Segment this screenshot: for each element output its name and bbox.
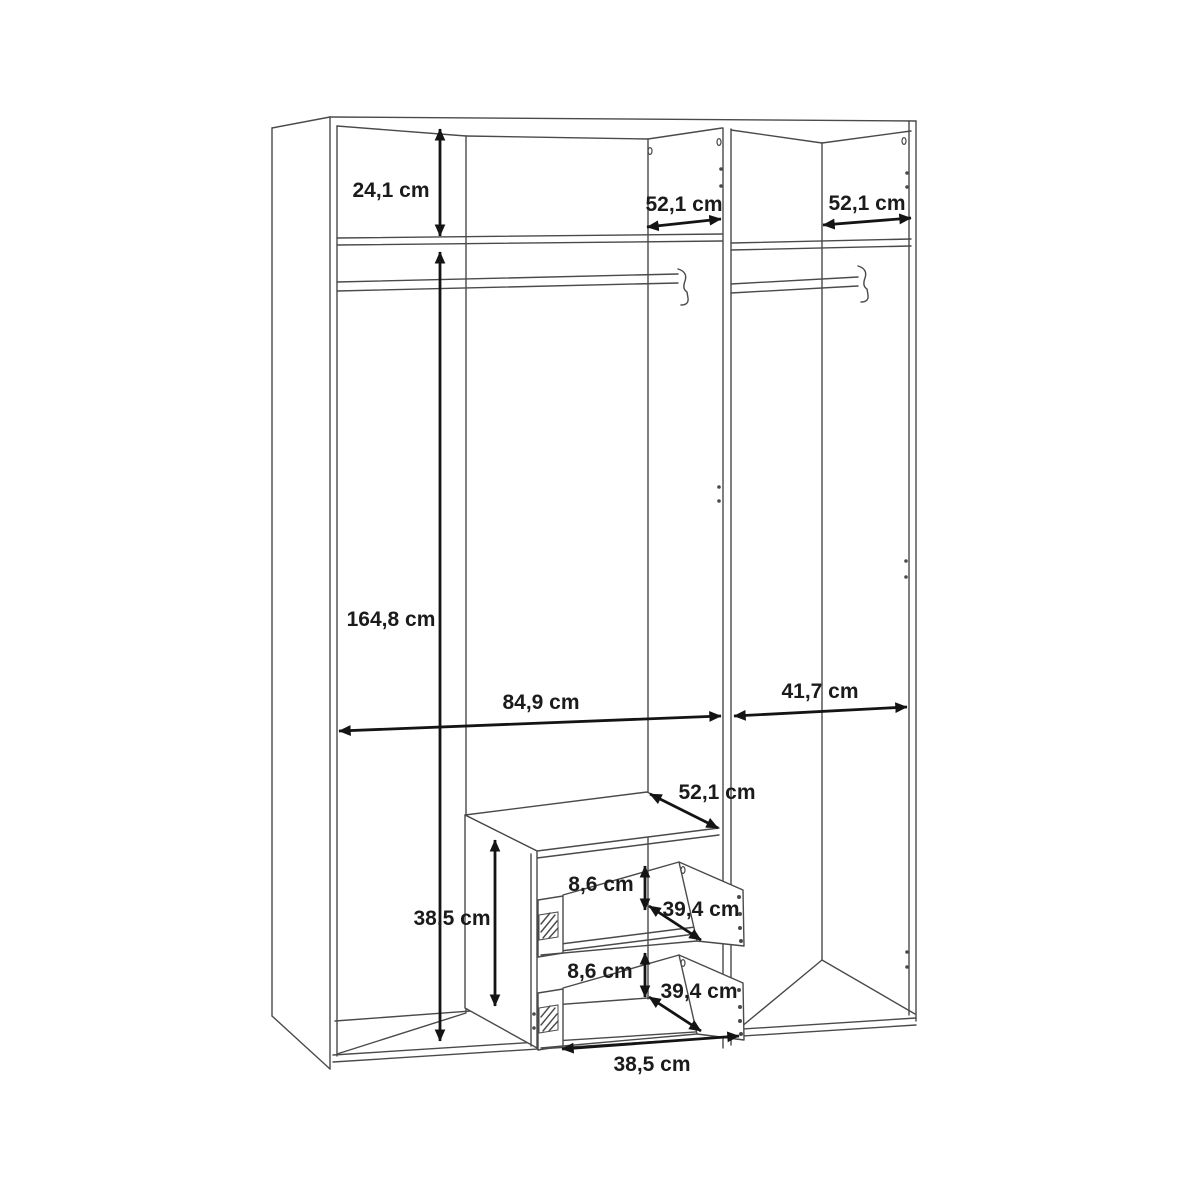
top-shelf-right-bottom — [731, 246, 911, 250]
dim-label-top-compartment-height: 24,1 cm — [352, 179, 429, 202]
screw-dot — [719, 184, 723, 188]
dim-label-lower-drawer-depth: 39,4 cm — [660, 980, 737, 1003]
cam-fitting-icon — [717, 139, 721, 146]
screw-dot — [738, 1005, 742, 1009]
screw-dot — [532, 1026, 536, 1030]
wardrobe-carcass — [272, 117, 916, 1069]
screw-dot — [904, 575, 908, 579]
left-rail-top — [337, 274, 678, 282]
screw-dot — [717, 485, 721, 489]
drawer-unit-left-panel — [465, 815, 537, 1048]
dim-label-left-section-width: 84,9 cm — [502, 691, 579, 714]
dim-label-drawer-unit-top-depth: 52,1 cm — [678, 781, 755, 804]
right-ceiling-back-edge — [822, 131, 911, 143]
left-rail-bracket — [678, 269, 688, 305]
dim-label-lower-drawer-opening-height: 8,6 cm — [567, 960, 632, 983]
drawer-unit — [465, 792, 744, 1050]
screw-dot — [905, 171, 909, 175]
right-rail-top — [731, 277, 858, 284]
right-rail-bracket — [858, 266, 868, 302]
screw-dot — [739, 1032, 743, 1036]
dim-label-right-section-width: 41,7 cm — [781, 680, 858, 703]
dim-arrow-left-section-width — [339, 716, 721, 731]
screw-dot — [905, 950, 909, 954]
dim-label-left-top-depth: 52,1 cm — [645, 193, 722, 216]
screw-dot — [905, 185, 909, 189]
upper-drawer-slide-rail — [539, 912, 558, 940]
floor-side-edge-right — [735, 960, 822, 1032]
lower-drawer-slide-rail — [539, 1005, 558, 1033]
screw-dot — [532, 1012, 536, 1016]
dim-label-drawer-unit-height: 38,5 cm — [413, 907, 490, 930]
top-shelf-right-front — [731, 239, 911, 243]
screw-dot — [739, 939, 743, 943]
top-shelf-left-front — [337, 234, 722, 238]
screw-dot — [719, 167, 723, 171]
wardrobe-dimension-diagram: 24,1 cm 52,1 cm 52,1 cm 164,8 cm 84,9 cm… — [0, 0, 1200, 1200]
top-shelf-left-bottom — [337, 241, 722, 245]
left-ceiling-side-edge — [337, 126, 466, 136]
right-rail-bottom — [731, 286, 858, 293]
screw-dot — [738, 1019, 742, 1023]
screw-dot — [904, 559, 908, 563]
hanging-rails — [337, 266, 868, 305]
right-ceiling-side-edge — [731, 130, 822, 143]
screw-dot — [737, 988, 741, 992]
dim-label-upper-drawer-depth: 39,4 cm — [662, 898, 739, 921]
left-ceiling-partition-edge — [648, 128, 722, 139]
screw-dot — [738, 926, 742, 930]
dim-label-interior-height: 164,8 cm — [347, 608, 436, 631]
cam-fitting-icon — [648, 148, 652, 155]
dim-label-right-top-depth: 52,1 cm — [828, 192, 905, 215]
dim-arrow-left-top-depth — [647, 219, 721, 227]
left-rail-bottom — [337, 283, 678, 291]
left-panel-bottom-edge — [272, 1016, 330, 1069]
diagram-page: 24,1 cm 52,1 cm 52,1 cm 164,8 cm 84,9 cm… — [0, 0, 1200, 1200]
dim-arrow-right-section-width — [734, 707, 907, 716]
dim-label-upper-drawer-opening-height: 8,6 cm — [568, 873, 633, 896]
left-ceiling-back-edge — [466, 136, 648, 139]
left-panel-top-edge — [272, 117, 330, 128]
dim-label-drawer-unit-width: 38,5 cm — [613, 1053, 690, 1076]
top-front-edge — [330, 117, 916, 121]
screw-dot — [905, 965, 909, 969]
dim-arrow-right-top-depth — [823, 218, 911, 225]
cam-fitting-icon — [902, 138, 906, 145]
floor-front-edge — [333, 1018, 916, 1055]
screw-dot — [717, 499, 721, 503]
floor-back-edge-right — [822, 960, 915, 1014]
